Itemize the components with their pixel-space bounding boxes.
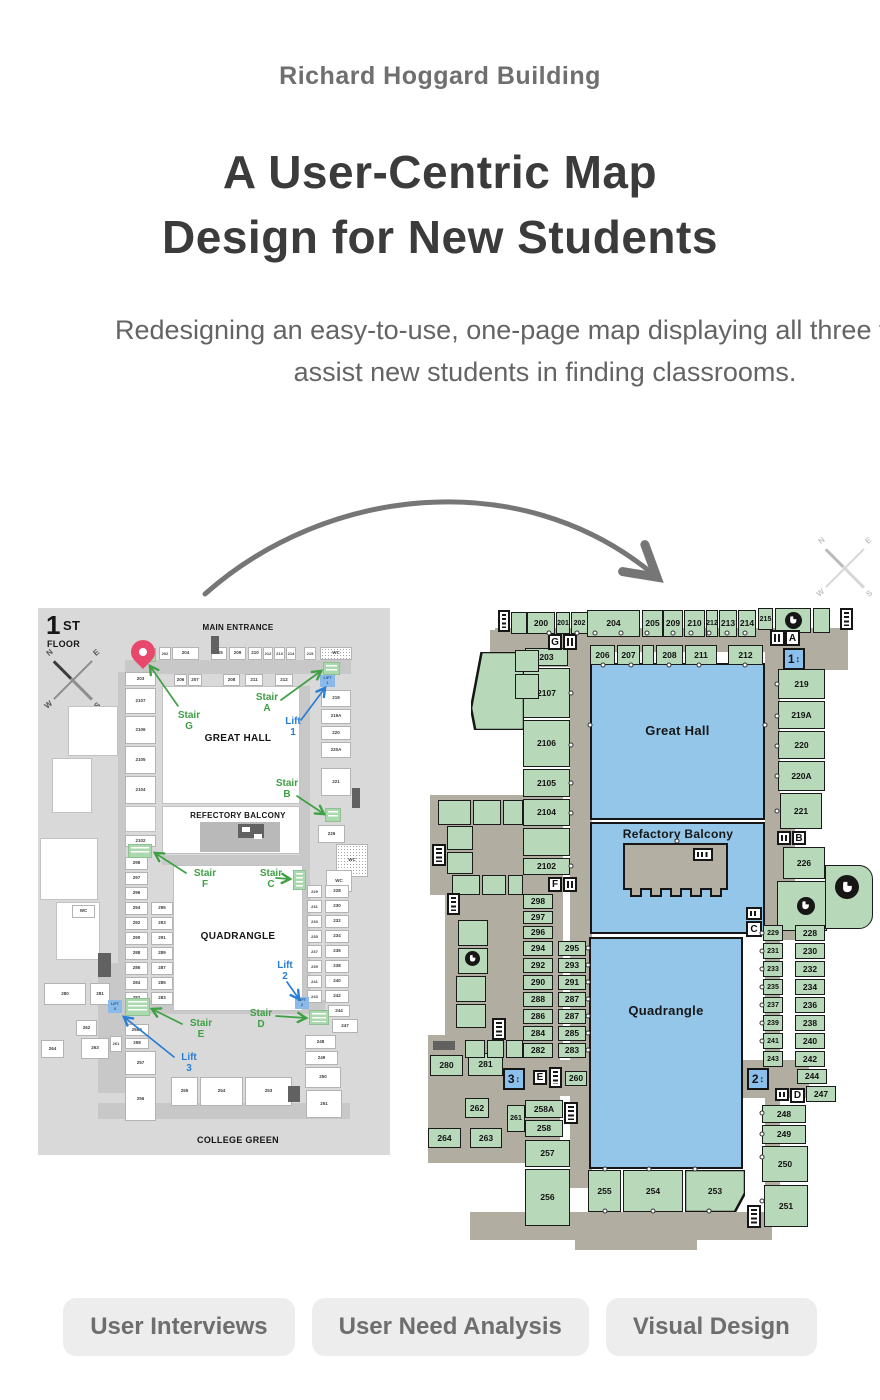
room-228: 228 xyxy=(325,885,349,898)
room-230: 230 xyxy=(795,943,825,959)
stairV-38 xyxy=(840,608,853,630)
room-220a: 220A xyxy=(321,742,351,758)
main-entrance-label: MAIN ENTRANCE xyxy=(148,623,328,633)
room-258a: 258A xyxy=(525,1100,563,1118)
dark-104 xyxy=(352,788,360,808)
lift-2-icon: 2↕ xyxy=(747,1068,769,1090)
room-297: 297 xyxy=(125,872,148,885)
room-154 xyxy=(465,1040,485,1058)
room-283: 283 xyxy=(151,992,173,1005)
dot-161 xyxy=(619,631,624,636)
room-241: 241 xyxy=(307,975,322,988)
room-207: 207 xyxy=(188,674,202,686)
room-211: 211 xyxy=(685,645,717,665)
dot-204 xyxy=(651,1209,656,1214)
tag-user-need-analysis[interactable]: User Need Analysis xyxy=(312,1298,589,1356)
room-210: 210 xyxy=(248,647,262,660)
room-294: 294 xyxy=(125,902,148,915)
room-231: 231 xyxy=(763,943,783,959)
room-203: 203 xyxy=(125,672,156,686)
room-255: 255 xyxy=(171,1077,198,1106)
room-140 xyxy=(503,800,523,825)
stairH-49 xyxy=(770,630,785,646)
room-258: 258 xyxy=(525,1120,563,1137)
room-262: 262 xyxy=(76,1020,97,1036)
room-233: 233 xyxy=(763,961,783,977)
room-232: 232 xyxy=(795,961,825,977)
lift-2-annotation: Lift 2 xyxy=(270,958,300,984)
room-292: 292 xyxy=(523,958,553,973)
stair-d-box xyxy=(309,1010,329,1025)
stair-e-annotation: Stair E xyxy=(184,1016,218,1042)
room-235: 235 xyxy=(763,979,783,995)
dot-194 xyxy=(775,744,780,749)
room-284: 284 xyxy=(523,1026,553,1041)
stair-c-box xyxy=(293,870,306,890)
room-230: 230 xyxy=(325,900,349,913)
dot-178 xyxy=(586,946,591,951)
room-285: 285 xyxy=(558,1026,586,1041)
room-2105: 2105 xyxy=(125,746,156,774)
room-145 xyxy=(482,875,506,895)
room-220: 220 xyxy=(321,726,351,740)
tag-visual-design[interactable]: Visual Design xyxy=(606,1298,817,1356)
room-239: 239 xyxy=(307,960,322,973)
dot-171 xyxy=(697,663,702,668)
toilet-icon xyxy=(797,897,815,915)
dot-163 xyxy=(671,631,676,636)
whitebox-13 xyxy=(40,838,98,900)
whitebox-11 xyxy=(68,706,118,756)
room-232: 232 xyxy=(325,915,349,928)
lift-2-box: LIFT 2 xyxy=(295,997,309,1009)
room-152 xyxy=(456,1004,486,1028)
room-257: 257 xyxy=(125,1051,156,1075)
room-239: 239 xyxy=(763,1015,783,1031)
room-155 xyxy=(487,1040,504,1058)
room-288: 288 xyxy=(523,992,553,1007)
room-296: 296 xyxy=(125,887,148,900)
room-148 xyxy=(458,920,488,946)
room-215: 215 xyxy=(304,647,316,660)
room-284: 284 xyxy=(125,977,148,990)
corr-0 xyxy=(125,660,351,674)
room-263: 263 xyxy=(81,1038,109,1059)
room-45 xyxy=(642,645,654,665)
title-line-2: Design for New Students xyxy=(0,205,880,270)
dot-190 xyxy=(760,1021,765,1026)
dot-208 xyxy=(760,1155,765,1160)
whitebox-10 xyxy=(125,806,156,832)
whitebox-12 xyxy=(52,758,92,813)
room-247: 247 xyxy=(332,1019,358,1033)
room-293: 293 xyxy=(151,917,173,930)
room-212: 212 xyxy=(263,647,273,660)
toilet-icon xyxy=(785,612,802,629)
lift-1-icon: 1↕ xyxy=(783,648,805,670)
room-243: 243 xyxy=(763,1051,783,1067)
dot-202 xyxy=(693,1167,698,1172)
room-2106: 2106 xyxy=(523,720,570,767)
dot-193 xyxy=(775,714,780,719)
room-215: 215 xyxy=(758,608,773,630)
stairV-153 xyxy=(492,1018,506,1040)
room-220a: 220A xyxy=(778,761,825,791)
room-219a: 219A xyxy=(778,701,825,729)
room-287: 287 xyxy=(151,962,173,975)
room-258a: 258A xyxy=(125,1024,149,1036)
room-280: 280 xyxy=(430,1055,463,1076)
stair-d-annotation: Stair D xyxy=(244,1006,278,1032)
room-142 xyxy=(447,852,473,874)
room-264: 264 xyxy=(428,1128,461,1148)
room-288: 288 xyxy=(125,947,148,960)
stair-letter-g: G xyxy=(548,634,562,650)
dark-105 xyxy=(288,1086,300,1102)
dot-176 xyxy=(569,811,574,816)
room-248: 248 xyxy=(305,1035,336,1049)
room-231: 231 xyxy=(307,900,322,913)
room-234: 234 xyxy=(325,930,349,943)
room-137 xyxy=(515,674,539,699)
dot-186 xyxy=(760,949,765,954)
dot-195 xyxy=(775,774,780,779)
room-260: 260 xyxy=(565,1071,587,1086)
room-242: 242 xyxy=(795,1051,825,1067)
dot-201 xyxy=(647,1167,652,1172)
stair-f-annotation: Stair F xyxy=(188,866,222,892)
stairV-126 xyxy=(564,1102,578,1124)
lift-1-box: LIFT 1 xyxy=(320,675,335,687)
room-286: 286 xyxy=(125,962,148,975)
room-249: 249 xyxy=(305,1051,338,1065)
dot-169 xyxy=(629,663,634,668)
room-226: 226 xyxy=(783,847,825,879)
stairH-17 xyxy=(693,848,713,861)
college-green-label: COLLEGE GREEN xyxy=(146,1134,330,1146)
room-2106: 2106 xyxy=(125,716,156,744)
room-229: 229 xyxy=(763,925,783,941)
room-243: 243 xyxy=(307,990,322,1003)
dot-158 xyxy=(547,631,552,636)
first-floor-thumbnail-map: 202204205209210212213214215WC20620720821… xyxy=(38,608,390,1155)
stairV-134 xyxy=(747,1205,761,1228)
dot-200 xyxy=(603,1167,608,1172)
dot-165 xyxy=(707,631,712,636)
room-2104: 2104 xyxy=(523,799,570,826)
stair-a-annotation: Stair A xyxy=(250,690,284,716)
title-line-1: A User-Centric Map xyxy=(0,140,880,205)
lift-3-annotation: Lift 3 xyxy=(174,1050,204,1076)
room-290: 290 xyxy=(125,932,148,945)
room-262: 262 xyxy=(465,1098,489,1118)
dot-191 xyxy=(760,1039,765,1044)
stairH-113 xyxy=(775,1088,789,1101)
tag-user-interviews[interactable]: User Interviews xyxy=(63,1298,294,1356)
dot-203 xyxy=(603,1209,608,1214)
room-255: 255 xyxy=(588,1170,621,1212)
lift-1-annotation: Lift 1 xyxy=(278,714,308,740)
room-214: 214 xyxy=(286,647,296,660)
room-261: 261 xyxy=(507,1105,525,1132)
room-229: 229 xyxy=(307,885,322,898)
stair-letter-b: B xyxy=(792,831,806,845)
room-256: 256 xyxy=(525,1169,570,1226)
room-208: 208 xyxy=(223,674,240,686)
room-263: 263 xyxy=(470,1128,502,1148)
room-206: 206 xyxy=(174,674,187,686)
tooth-19 xyxy=(650,888,662,897)
room-286: 286 xyxy=(523,1009,553,1024)
dot-197 xyxy=(763,723,768,728)
stairH-41 xyxy=(563,634,577,650)
room-219: 219 xyxy=(778,669,825,699)
toilet-icon xyxy=(465,951,480,966)
room-295: 295 xyxy=(151,902,173,915)
stair-f-box xyxy=(128,844,152,858)
stair-letter-d: D xyxy=(790,1088,805,1103)
room-211: 211 xyxy=(245,674,263,686)
room-202: 202 xyxy=(571,612,588,634)
room-291: 291 xyxy=(558,975,586,990)
toilet-icon xyxy=(835,875,859,899)
room-236: 236 xyxy=(795,997,825,1013)
dot-182 xyxy=(586,1014,591,1019)
room-251: 251 xyxy=(764,1185,808,1227)
room-136 xyxy=(515,650,539,672)
dot-192 xyxy=(775,682,780,687)
dark-103 xyxy=(98,953,111,977)
floor-word: FLOOR xyxy=(47,639,97,649)
room-138 xyxy=(438,800,471,825)
room-233: 233 xyxy=(307,915,322,928)
room-280: 280 xyxy=(44,983,86,1005)
room-151 xyxy=(456,976,486,1002)
stair-c-annotation: Stair C xyxy=(254,866,288,892)
corr-6 xyxy=(470,1212,772,1240)
dot-179 xyxy=(586,963,591,968)
stair-letter-e: E xyxy=(533,1070,547,1085)
dot-198 xyxy=(588,723,593,728)
dot-164 xyxy=(689,631,694,636)
room-292: 292 xyxy=(125,917,148,930)
room-251: 251 xyxy=(306,1090,342,1118)
stair-a-box xyxy=(323,662,340,675)
room-296: 296 xyxy=(523,926,553,939)
compass-icon: NEWS xyxy=(818,540,872,594)
dot-177 xyxy=(569,864,574,869)
dot-196 xyxy=(775,809,780,814)
dot-172 xyxy=(743,663,748,668)
dot-189 xyxy=(760,1003,765,1008)
room-37 xyxy=(813,608,830,633)
room-240: 240 xyxy=(795,1033,825,1049)
dot-207 xyxy=(760,1132,765,1137)
great-hall-area xyxy=(590,663,765,820)
dot-206 xyxy=(760,1111,765,1116)
room-209: 209 xyxy=(229,647,246,660)
dot-173 xyxy=(569,691,574,696)
stairH-59 xyxy=(563,877,577,892)
room-293: 293 xyxy=(558,958,586,973)
room-146 xyxy=(508,875,523,895)
white-101 xyxy=(254,834,262,839)
room-281: 281 xyxy=(90,983,110,1005)
room-242: 242 xyxy=(325,990,349,1003)
room-295: 295 xyxy=(558,941,586,956)
room-283: 283 xyxy=(558,1043,586,1058)
dot-187 xyxy=(760,967,765,972)
txt-st: ST xyxy=(63,618,87,632)
room-257: 257 xyxy=(525,1140,570,1167)
great-hall-label: Great Hall xyxy=(590,723,765,737)
corr-3 xyxy=(162,855,308,865)
dot-180 xyxy=(586,980,591,985)
room-212: 212 xyxy=(275,674,293,686)
stairV-79 xyxy=(549,1067,562,1088)
stairH-86 xyxy=(777,831,791,845)
room-249: 249 xyxy=(762,1125,806,1144)
room-238: 238 xyxy=(795,1015,825,1031)
room-291: 291 xyxy=(151,932,173,945)
stairV-23 xyxy=(498,610,510,632)
dot-175 xyxy=(569,781,574,786)
room-226: 226 xyxy=(318,825,345,843)
room-2107: 2107 xyxy=(125,688,156,714)
room-287: 287 xyxy=(558,992,586,1007)
room-254: 254 xyxy=(200,1077,243,1106)
quadrangle-label: Quadrangle xyxy=(589,1003,743,1017)
dot-181 xyxy=(586,997,591,1002)
dot-209 xyxy=(760,1199,765,1204)
room-237: 237 xyxy=(763,997,783,1013)
stair-g-annotation: Stair G xyxy=(172,708,206,734)
refectory-balcony-label: REFECTORY BALCONY xyxy=(156,810,320,821)
room-2102: 2102 xyxy=(523,858,570,875)
room-wc: WC xyxy=(320,647,352,660)
dot-184 xyxy=(586,1048,591,1053)
room-235: 235 xyxy=(307,930,322,943)
room-24 xyxy=(511,612,527,634)
dot-183 xyxy=(586,1031,591,1036)
room-248: 248 xyxy=(762,1105,806,1123)
room-228: 228 xyxy=(795,925,825,941)
room-289: 289 xyxy=(151,947,173,960)
corr-7 xyxy=(575,1238,697,1250)
room-202: 202 xyxy=(159,647,171,660)
dot-160 xyxy=(593,631,598,636)
stair-letter-f: F xyxy=(548,877,562,892)
room-220: 220 xyxy=(778,731,825,759)
dot-188 xyxy=(760,985,765,990)
room-240: 240 xyxy=(325,975,349,988)
dot-159 xyxy=(575,631,580,636)
room-2104: 2104 xyxy=(125,776,156,804)
page-title: A User-Centric Map Design for New Studen… xyxy=(0,140,880,271)
room-285: 285 xyxy=(151,977,173,990)
room-236: 236 xyxy=(325,945,349,958)
room-2105: 2105 xyxy=(523,769,570,797)
dot-170 xyxy=(667,663,672,668)
room-144 xyxy=(452,875,480,895)
quadrangle-label: QUADRANGLE xyxy=(176,930,300,944)
room-56 xyxy=(523,828,570,856)
lift-3-icon: 3↕ xyxy=(503,1068,525,1090)
room-221: 221 xyxy=(321,768,351,796)
dot-174 xyxy=(569,743,574,748)
white-100 xyxy=(242,827,250,832)
dot-162 xyxy=(645,631,650,636)
room-264: 264 xyxy=(41,1040,64,1058)
tag-list: User Interviews User Need Analysis Visua… xyxy=(0,1298,880,1356)
room-298: 298 xyxy=(523,894,553,909)
dot-167 xyxy=(743,631,748,636)
room-244: 244 xyxy=(797,1069,827,1084)
room-287: 287 xyxy=(558,1009,586,1024)
stairV-147 xyxy=(447,893,460,915)
room-250: 250 xyxy=(762,1146,808,1182)
dot-166 xyxy=(725,631,730,636)
quadrangle-area xyxy=(589,937,743,1169)
dot-199 xyxy=(675,839,680,844)
dot-205 xyxy=(707,1209,712,1214)
room-253: 253 xyxy=(245,1077,292,1106)
room-156 xyxy=(506,1040,523,1058)
tooth-20 xyxy=(670,888,682,897)
room-250: 250 xyxy=(305,1067,341,1088)
dark-157 xyxy=(433,1041,455,1050)
stair-b-box xyxy=(325,808,341,822)
room-282: 282 xyxy=(523,1043,553,1058)
room-241: 241 xyxy=(763,1033,783,1049)
room-297: 297 xyxy=(523,911,553,924)
poly-253: 253 xyxy=(685,1170,745,1212)
portfolio-page: Richard Hoggard Building A User-Centric … xyxy=(0,0,880,1400)
room-256: 256 xyxy=(125,1077,156,1121)
room-204: 204 xyxy=(172,647,199,660)
room-258: 258 xyxy=(125,1038,149,1049)
room-219a: 219A xyxy=(321,709,351,724)
stair-letter-a: A xyxy=(785,630,800,646)
stairV-143 xyxy=(432,844,446,866)
room-wc: WC xyxy=(72,905,95,918)
stairH-93 xyxy=(746,907,762,920)
room-294: 294 xyxy=(523,941,553,956)
room-244: 244 xyxy=(328,1005,350,1017)
room-139 xyxy=(473,800,501,825)
tooth-18 xyxy=(630,888,642,897)
room-238: 238 xyxy=(325,960,349,973)
building-name: Richard Hoggard Building xyxy=(0,62,880,91)
room-254: 254 xyxy=(623,1170,683,1212)
tooth-22 xyxy=(710,888,722,897)
room-237: 237 xyxy=(307,945,322,958)
stair-b-annotation: Stair B xyxy=(270,776,304,802)
room-201: 201 xyxy=(556,612,570,634)
room-213: 213 xyxy=(274,647,285,660)
stair-e-box xyxy=(125,998,150,1016)
room-290: 290 xyxy=(523,975,553,990)
room-261: 261 xyxy=(110,1036,122,1052)
dot-185 xyxy=(760,931,765,936)
room-247: 247 xyxy=(806,1086,836,1102)
page-subtitle: Redesigning an easy-to-use, one-page map… xyxy=(0,310,880,394)
compass-icon: NEWS xyxy=(46,652,100,706)
lift-3-box: LIFT 3 xyxy=(108,1000,122,1013)
room-210: 210 xyxy=(684,610,705,637)
room-141 xyxy=(447,826,473,850)
redesigned-floor-map: 200201202204205209210212213214215G203206… xyxy=(425,535,880,1247)
